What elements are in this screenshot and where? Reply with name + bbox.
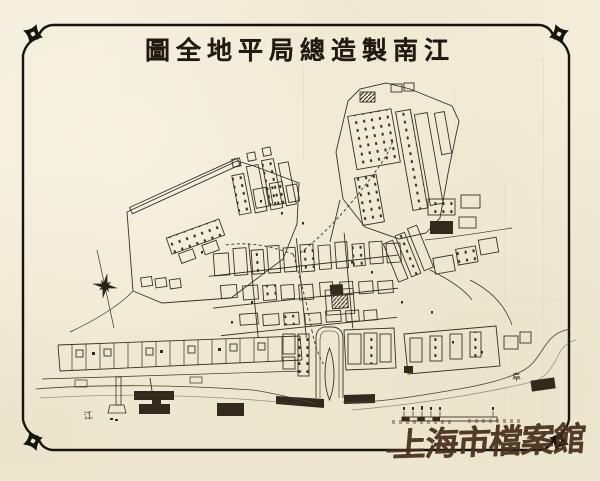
stamp-smear [392, 420, 454, 424]
southeast-cluster [344, 326, 531, 374]
bank-label: 阜 [512, 371, 521, 382]
left-compound [70, 158, 300, 332]
east-cluster [425, 195, 512, 325]
stamp-smear [468, 419, 522, 423]
archive-map-sheet: 圖全地平局總造製南江 [0, 0, 600, 481]
archive-stamp: 上海市檔案館 [392, 423, 600, 463]
river-label: 江 [83, 410, 93, 421]
compass-rose-icon [90, 250, 120, 328]
slipway [316, 327, 343, 400]
frame-corner-knots [20, 21, 573, 455]
map-drawing: 江 阜 [0, 0, 600, 481]
frame-border [23, 25, 569, 450]
waterfront-row [42, 334, 309, 387]
